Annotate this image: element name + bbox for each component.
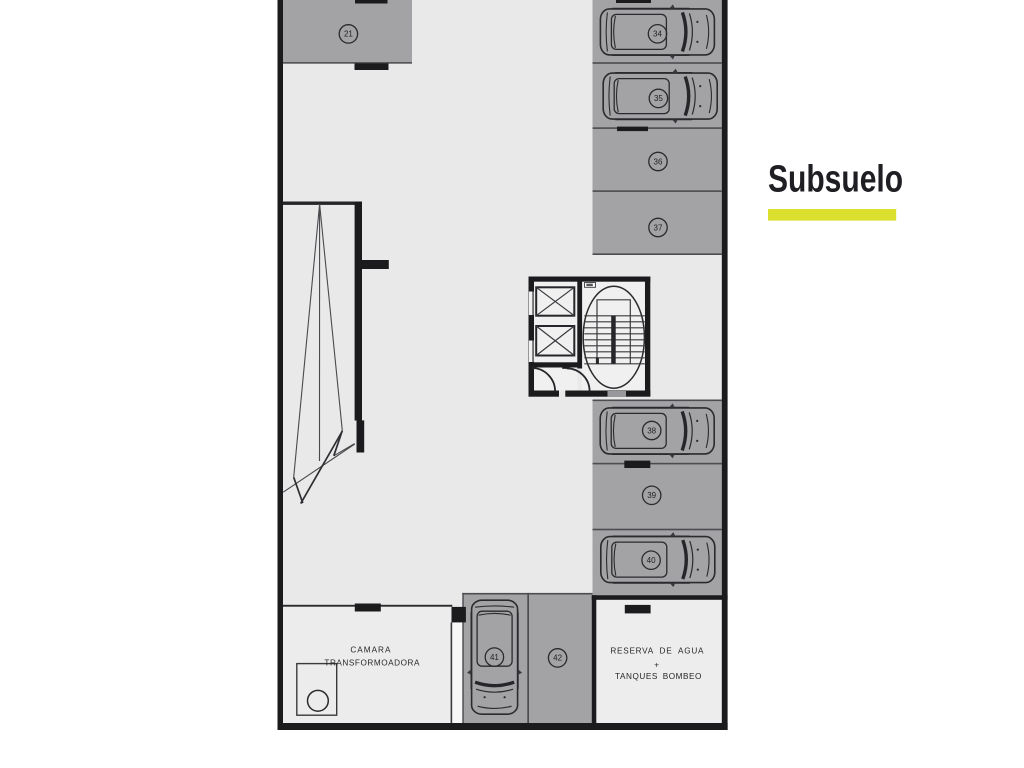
svg-text:CAMARA: CAMARA: [350, 646, 391, 655]
svg-text:38: 38: [647, 426, 656, 435]
svg-text:35: 35: [654, 94, 663, 103]
svg-text:Subsuelo: Subsuelo: [768, 158, 903, 200]
svg-text:36: 36: [654, 157, 663, 166]
svg-text:34: 34: [653, 30, 662, 39]
svg-text:42: 42: [553, 654, 562, 663]
svg-text:21: 21: [344, 30, 353, 39]
svg-text:TANQUES BOMBEO: TANQUES BOMBEO: [615, 672, 702, 681]
svg-text:41: 41: [490, 653, 499, 662]
svg-text:40: 40: [647, 556, 656, 565]
svg-text:37: 37: [654, 223, 663, 232]
svg-text:+: +: [654, 661, 659, 670]
svg-text:39: 39: [647, 491, 656, 500]
svg-text:RESERVA DE AGUA: RESERVA DE AGUA: [610, 647, 704, 656]
svg-text:TRANSFORMOADORA: TRANSFORMOADORA: [324, 659, 420, 668]
